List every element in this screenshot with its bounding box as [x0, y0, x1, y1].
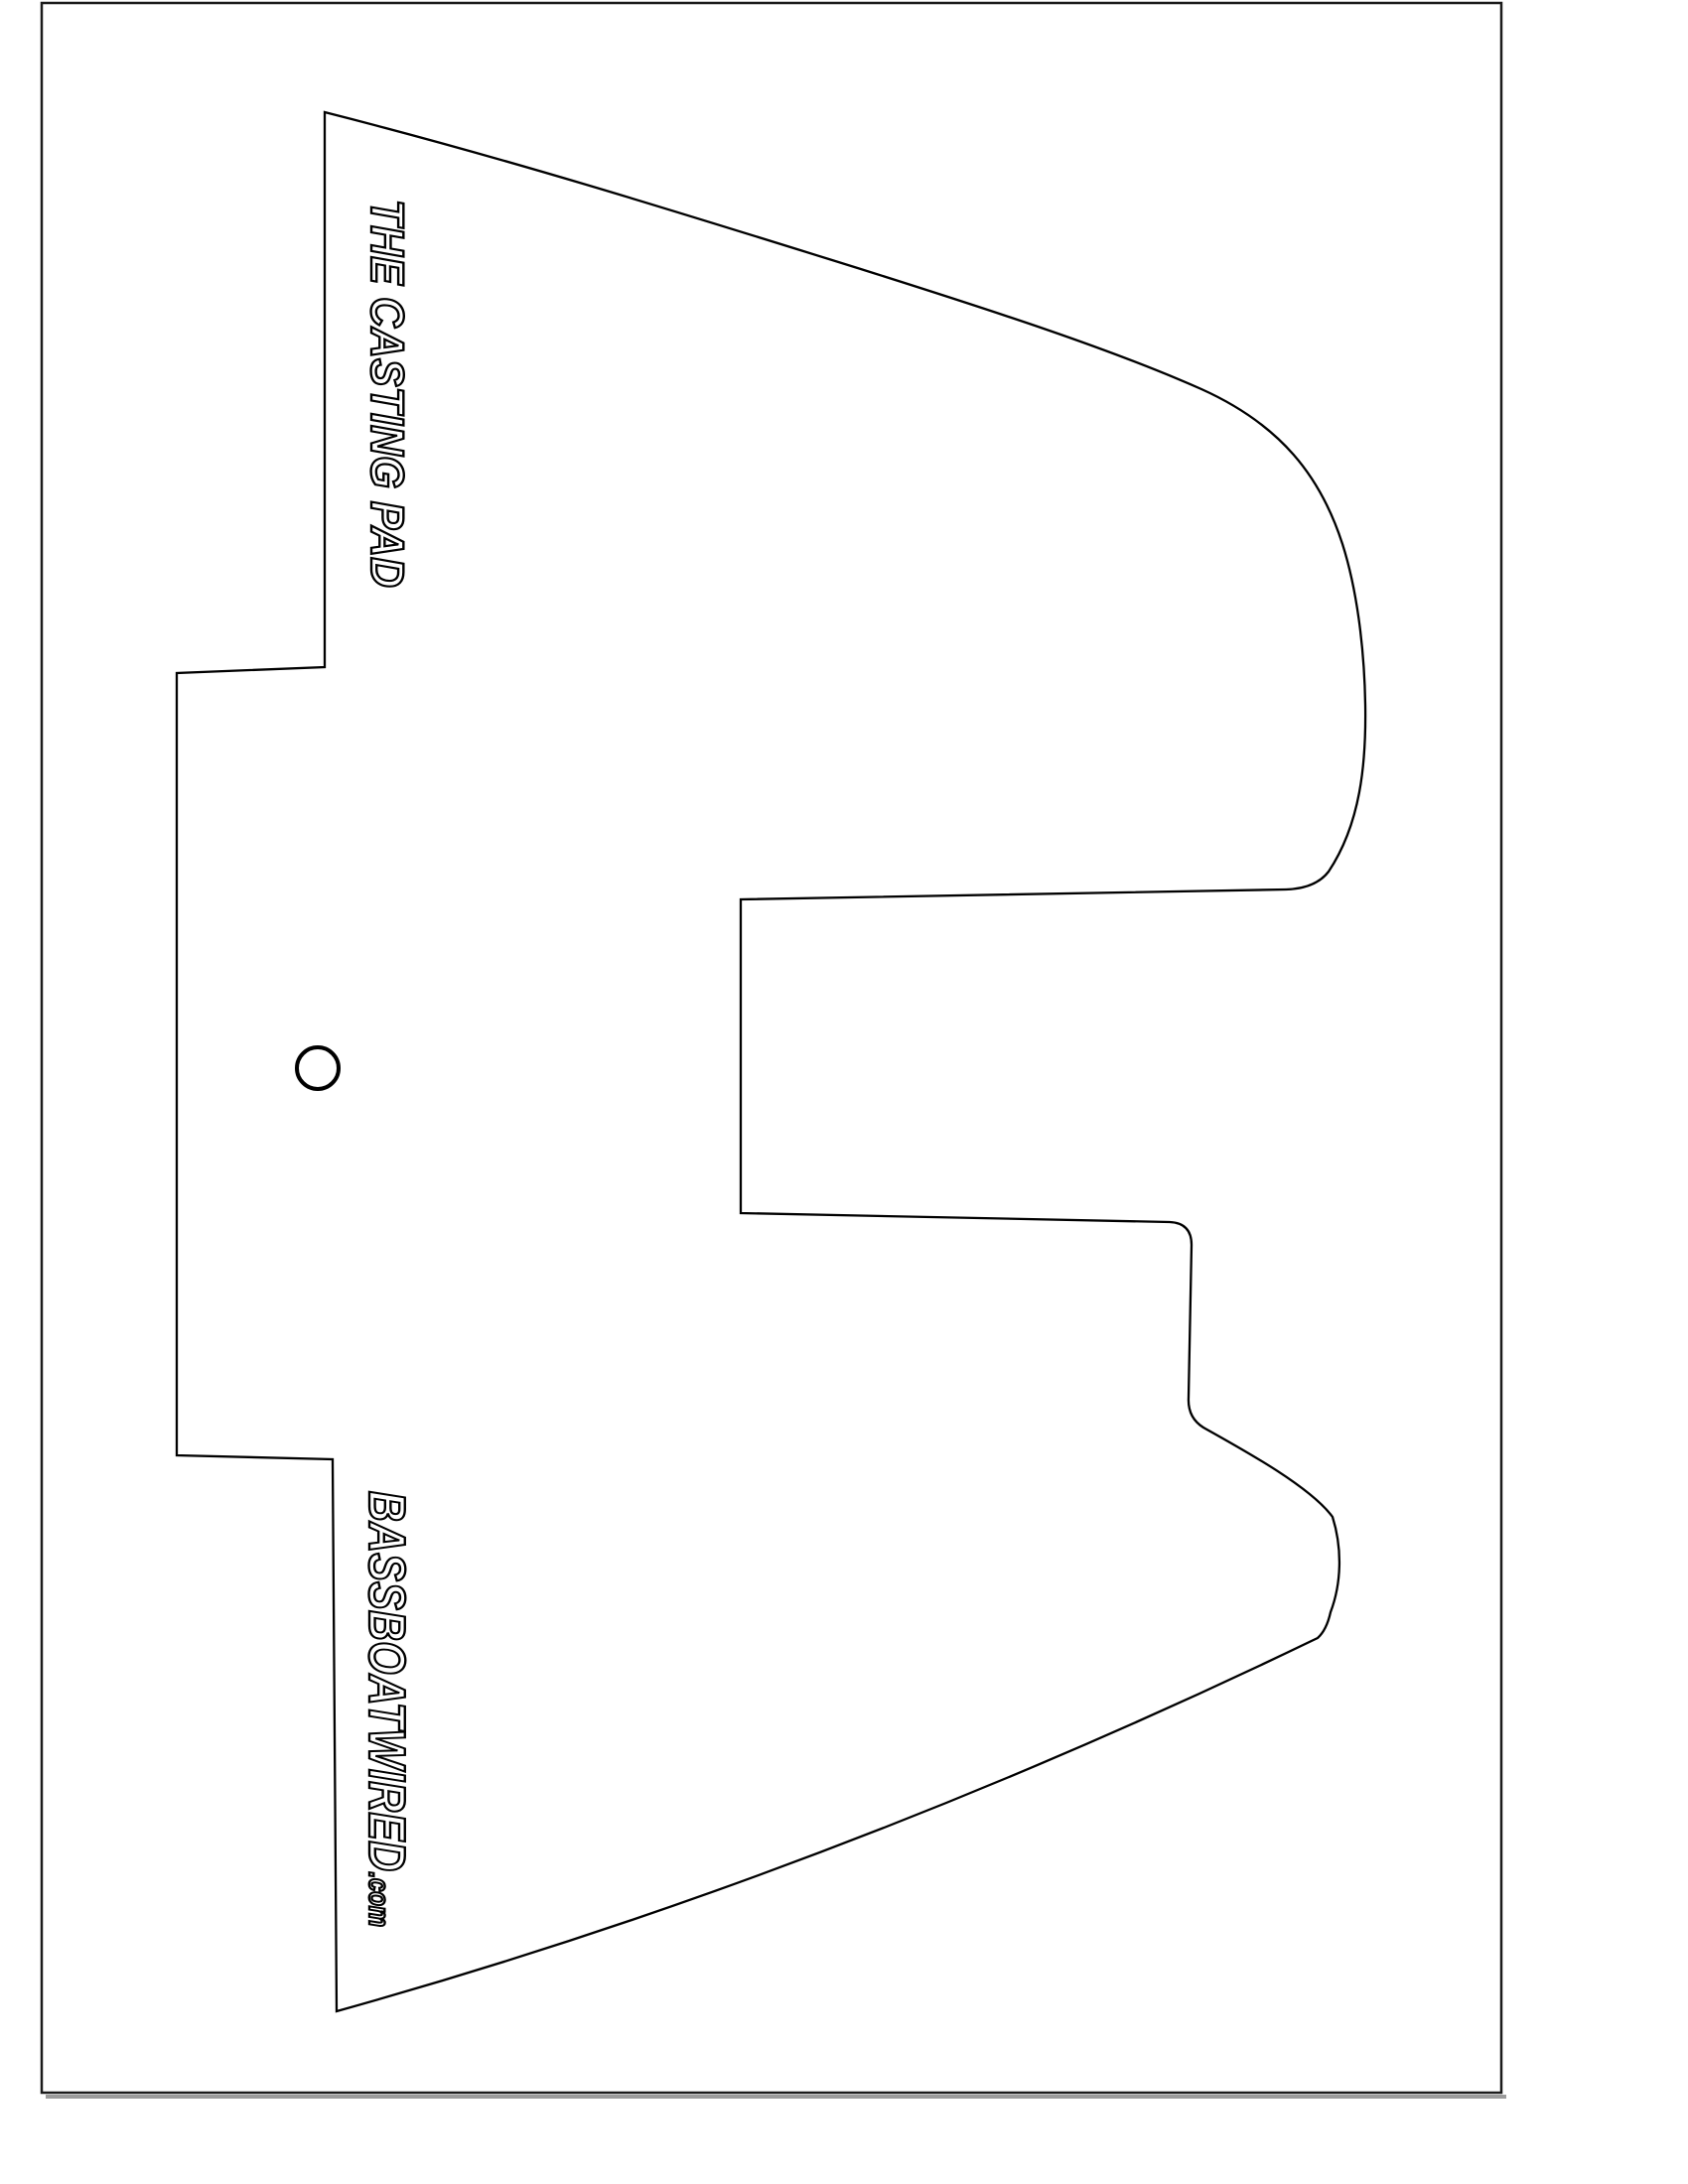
- template-outline-drawing: [0, 0, 1688, 2184]
- brand-name-text: BASSBOATWIRED: [357, 1491, 415, 1872]
- mounting-hole-circle: [297, 1047, 339, 1089]
- brand-text: BASSBOATWIRED.com: [360, 1491, 412, 1927]
- template-title-text: THE CASTING PAD: [364, 200, 411, 588]
- brand-tld-text: .com: [362, 1872, 394, 1928]
- template-page: THE CASTING PAD BASSBOATWIRED.com: [0, 0, 1688, 2184]
